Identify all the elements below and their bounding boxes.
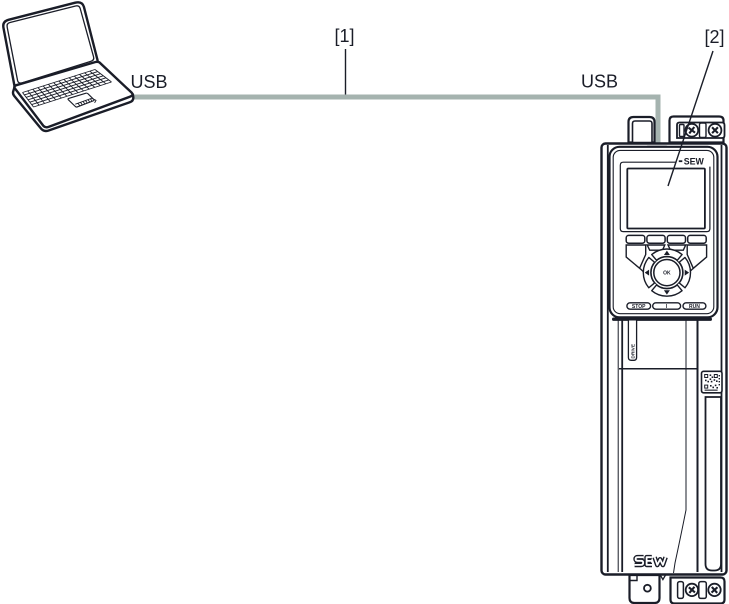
svg-text:[1]: [1]: [335, 26, 355, 46]
svg-text:RUN: RUN: [689, 304, 700, 310]
svg-text:SEW: SEW: [684, 156, 705, 166]
svg-text:STOP: STOP: [632, 304, 646, 310]
svg-text:DRIVE: DRIVE: [630, 343, 636, 358]
svg-text:USB: USB: [131, 72, 168, 92]
svg-text:USB: USB: [581, 71, 618, 91]
svg-text:OK: OK: [663, 270, 671, 276]
svg-text:[2]: [2]: [705, 27, 725, 47]
